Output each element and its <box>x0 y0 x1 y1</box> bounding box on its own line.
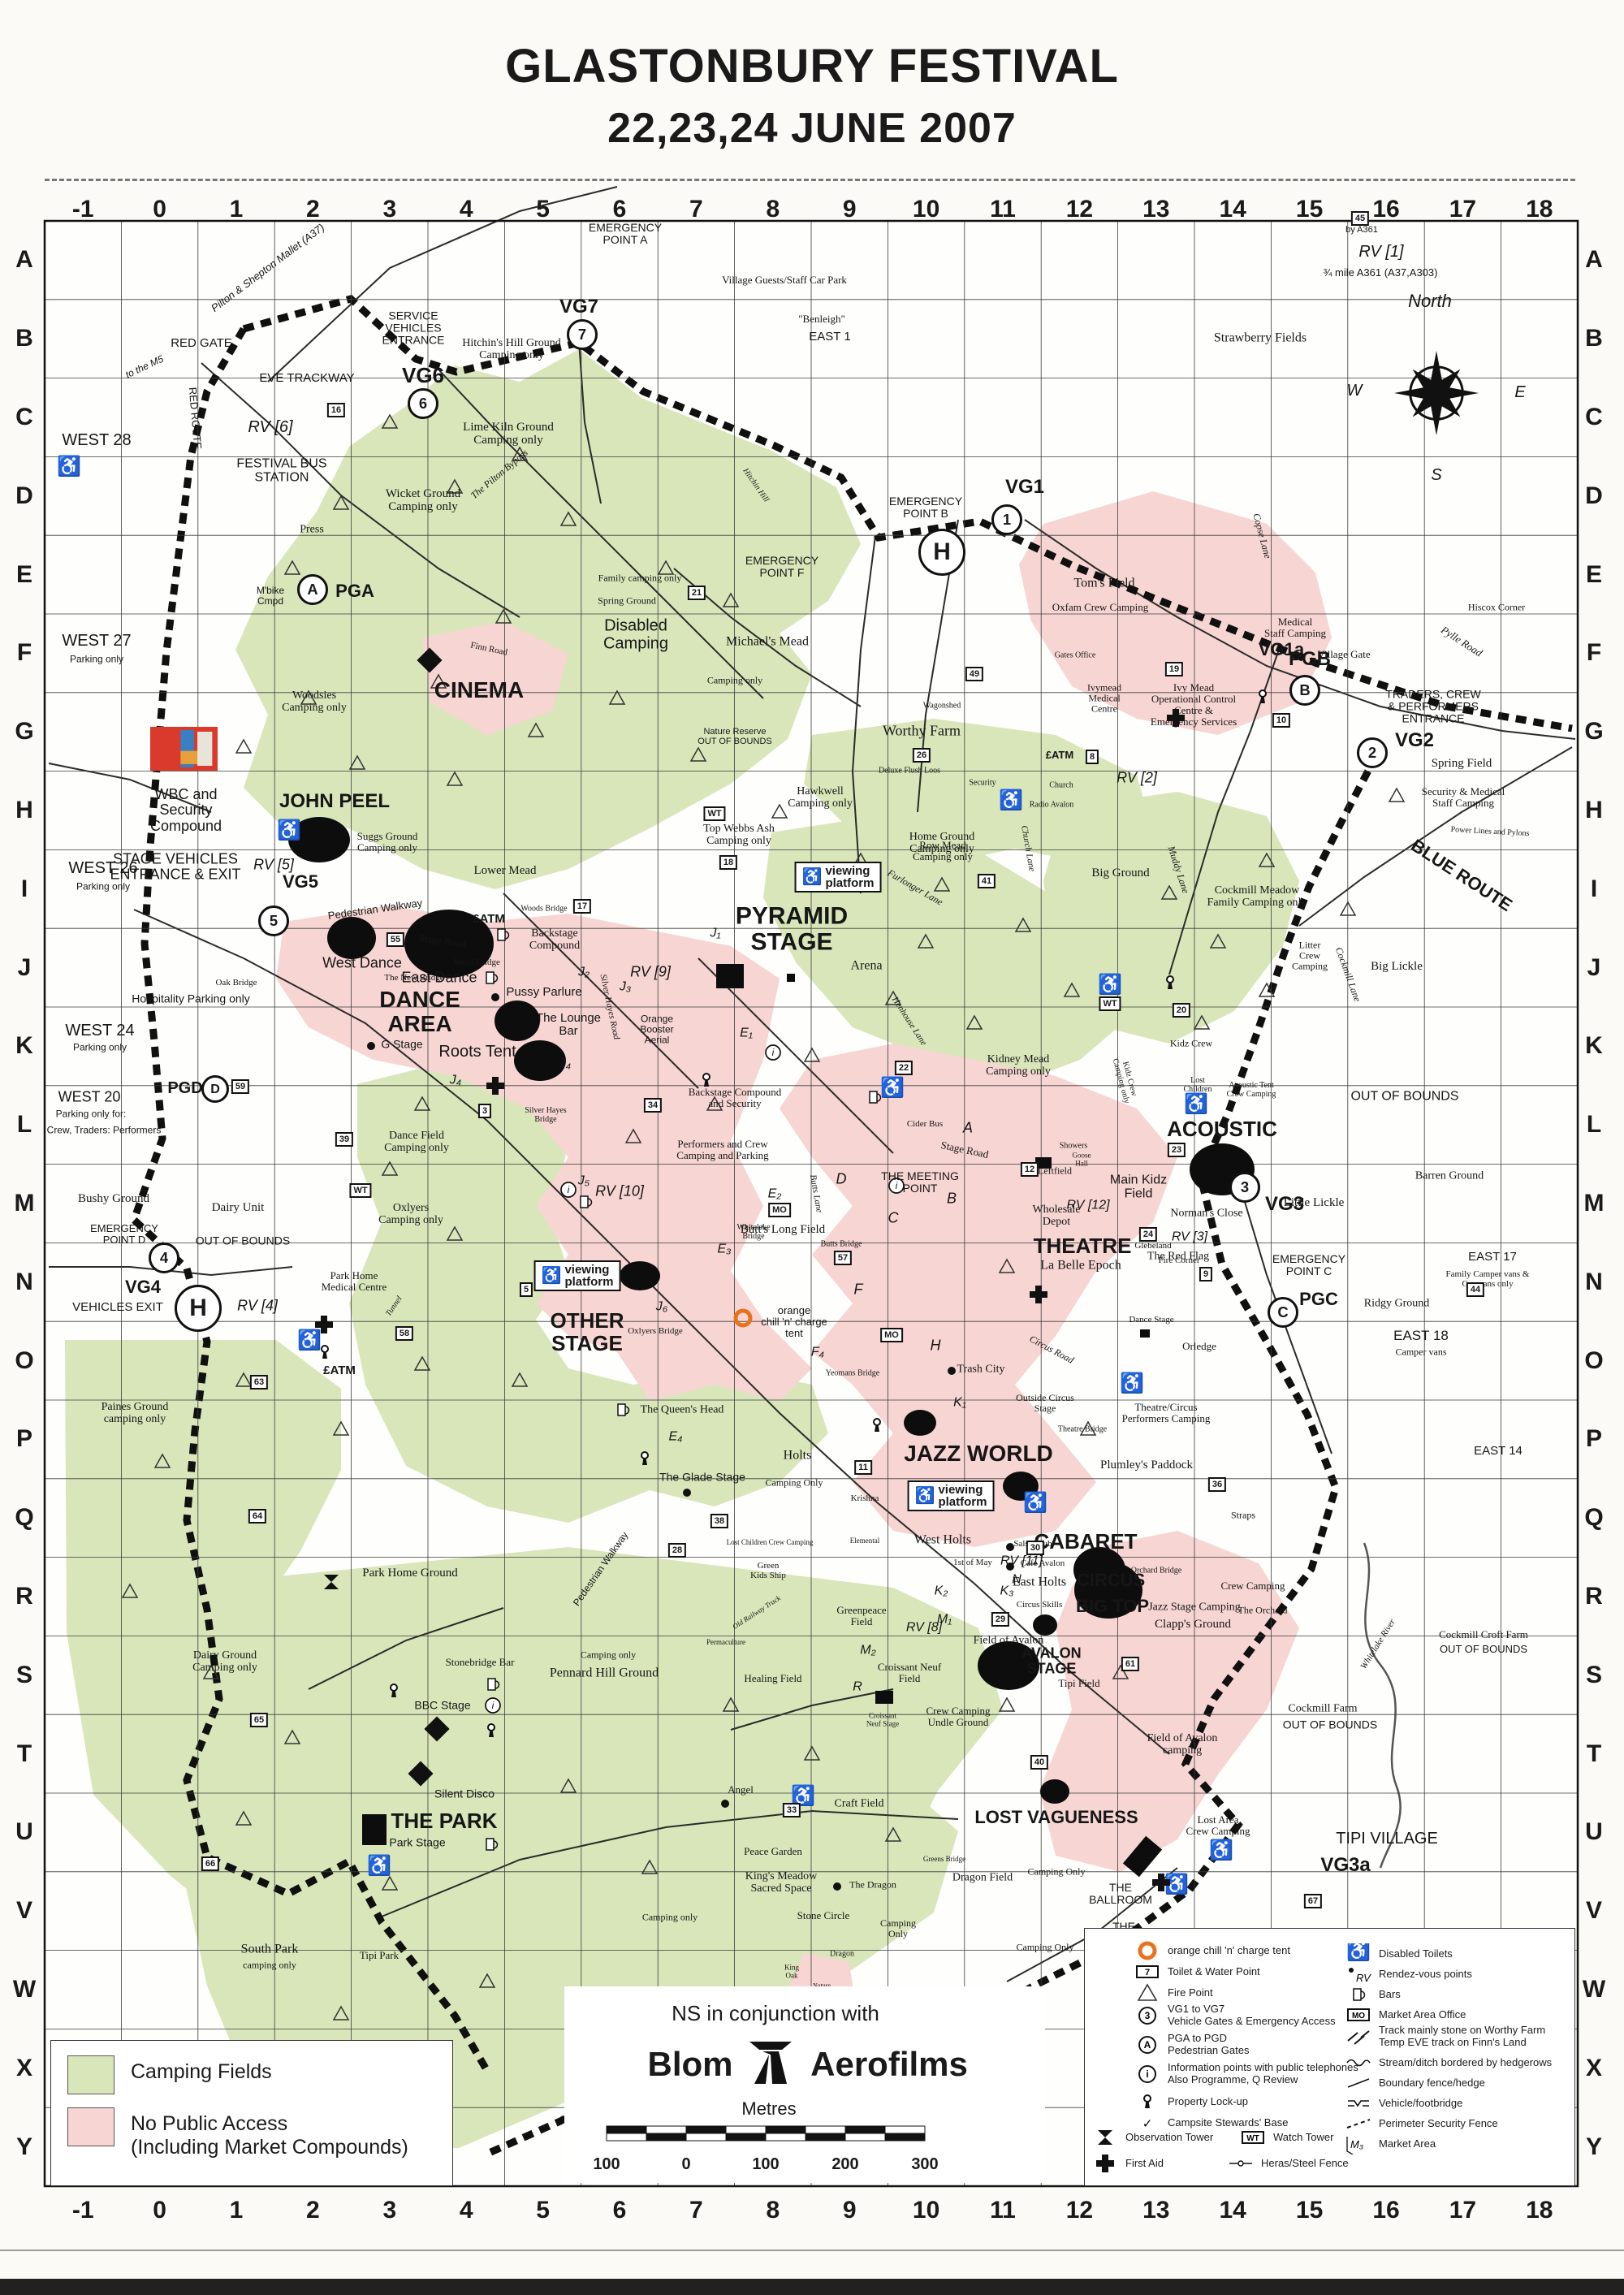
map-label: West Holts <box>914 1532 971 1546</box>
map-label: Backstage Compound and Security <box>689 1087 781 1109</box>
map-label: Leftfield <box>1038 1166 1072 1177</box>
map-label: RV [8] <box>906 1620 942 1634</box>
col-label-bottom: 16 <box>1372 2197 1399 2224</box>
map-label: PGB <box>1289 649 1331 670</box>
map-label: £ATM <box>1046 750 1073 761</box>
map-label: Village Guests/Staff Car Park <box>722 274 847 286</box>
legend-item: 7Toilet & Water Point <box>1134 1961 1260 1982</box>
map-label: Dance Stage <box>1129 1316 1173 1325</box>
map-label: Tipi Park <box>360 1950 399 1961</box>
row-label-left: B <box>15 325 33 352</box>
map-label: La Belle Epoch <box>1040 1258 1121 1272</box>
market-area-office: MO <box>768 1203 791 1217</box>
col-label-top: 9 <box>843 196 857 223</box>
cross-icon <box>1091 2153 1119 2174</box>
map-label: East Dance <box>401 970 477 985</box>
row-label-left: L <box>17 1111 32 1139</box>
col-label-top: 13 <box>1142 196 1169 223</box>
boxWT-icon: WT <box>1239 2127 1267 2148</box>
map-label: Tipi Field <box>1058 1678 1099 1689</box>
gate-badge: H <box>918 529 965 576</box>
map-label: D <box>836 1171 847 1186</box>
wheelchair-icon: ♿ <box>542 1268 562 1284</box>
toilet-water-point: 49 <box>965 667 983 681</box>
map-label: Whitelake Bridge <box>736 1224 770 1242</box>
svg-text:RV: RV <box>1356 1972 1371 1984</box>
col-label-bottom: 14 <box>1220 2197 1246 2224</box>
map-label: Cider Bus <box>907 1120 943 1130</box>
col-label-bottom: 7 <box>689 2197 703 2224</box>
legend-item: M₃Market Area <box>1345 2133 1436 2155</box>
map-label: Orange Booster Aerial <box>640 1014 673 1046</box>
toilet-water-point: 3 <box>478 1104 491 1118</box>
map-label: F <box>854 1281 863 1297</box>
row-label-left: D <box>15 482 33 510</box>
svg-text:MO: MO <box>1352 2012 1365 2021</box>
map-label: Gates Office <box>1055 652 1096 661</box>
legend-item-label: Information points with public telephone… <box>1168 2062 1358 2086</box>
viewing-platform: ♿viewing platform <box>908 1480 995 1511</box>
col-label-top: 10 <box>913 196 939 223</box>
toilet-water-point: 59 <box>231 1079 249 1094</box>
map-label: RV [6] <box>248 419 292 437</box>
map-label: "Benleigh" <box>798 313 845 325</box>
legend-item: MOMarket Area Office <box>1345 2004 1466 2025</box>
map-label: Dragon <box>830 1951 854 1960</box>
tent-icon <box>1134 1940 1161 1961</box>
legend-item-label: First Aid <box>1125 2158 1164 2170</box>
row-label-left: C <box>15 404 33 431</box>
map-label: WEST 24 <box>65 1022 134 1040</box>
map-label: Medical Staff Camping <box>1264 616 1326 639</box>
toilet-water-point: 30 <box>1026 1541 1044 1555</box>
scale-tick: 300 <box>911 2155 938 2174</box>
toilet-water-point: 41 <box>978 874 996 888</box>
map-label: Norman's Close <box>1170 1207 1242 1219</box>
toilet-water-point: 61 <box>1121 1657 1139 1671</box>
col-label-bottom: 5 <box>536 2197 550 2224</box>
col-label-bottom: 11 <box>990 2197 1016 2224</box>
map-label: OUT OF BOUNDS <box>1350 1089 1458 1103</box>
map-label: E <box>1514 384 1525 402</box>
col-label-top: 16 <box>1372 196 1399 223</box>
row-label-right: F <box>1587 639 1601 667</box>
map-label: WEST 20 <box>58 1089 121 1104</box>
map-label: Croissant Neuf Field <box>878 1662 941 1684</box>
svg-text:M₃: M₃ <box>1350 2138 1363 2150</box>
map-label: Theatre/Circus Performers Camping <box>1122 1402 1211 1424</box>
map-label: Greenpeace Field <box>836 1605 886 1627</box>
map-label: Cockmill Meadow Family Camping only <box>1207 884 1307 909</box>
toilet-water-point: 65 <box>250 1713 268 1727</box>
map-label: Ivymead Medical Centre <box>1087 683 1121 715</box>
map-label: THE BALLROOM <box>1089 1882 1152 1906</box>
map-label: PGA <box>335 581 374 601</box>
map-label: VG7 <box>559 296 598 318</box>
map-label: Permaculture <box>706 1639 745 1647</box>
footer-strip <box>0 2279 1624 2295</box>
map-label: Oxfam Crew Camping <box>1052 602 1148 613</box>
map-label: THE MEETING POINT <box>881 1170 959 1195</box>
map-label: ACOUSTIC <box>1167 1117 1277 1140</box>
map-label: Greens Bridge <box>923 1856 965 1864</box>
map-label: J₅ <box>578 1173 590 1187</box>
row-label-right: E <box>1586 561 1602 589</box>
row-label-right: K <box>1585 1032 1603 1060</box>
map-label: VG3a <box>1320 1855 1370 1876</box>
col-label-bottom: 4 <box>460 2197 473 2224</box>
map-label: Litter Crew Camping <box>1292 940 1328 972</box>
map-label: JOHN PEEL <box>279 791 390 812</box>
map-label: EAST 17 <box>1468 1251 1517 1264</box>
map-label: Church <box>1049 782 1073 791</box>
toilet-water-point: 38 <box>710 1514 728 1528</box>
wheelchair-icon: ♿ <box>802 869 823 885</box>
map-label: Park Stage <box>389 1836 445 1848</box>
map-label: RV [10] <box>595 1183 644 1199</box>
col-label-bottom: 17 <box>1449 2197 1476 2224</box>
map-label: Holts <box>784 1448 812 1462</box>
gate-badge: C <box>1268 1297 1298 1328</box>
svg-text:WT: WT <box>1246 2134 1259 2143</box>
toilet-water-point: 58 <box>395 1326 413 1341</box>
beer-icon <box>1345 1984 1372 2005</box>
map-label: C <box>888 1210 899 1225</box>
legend-item: ♿Disabled Toilets <box>1345 1943 1453 1964</box>
watch-tower: WT <box>349 1183 371 1198</box>
row-label-right: W <box>1583 1976 1605 2003</box>
col-label-bottom: 12 <box>1066 2197 1093 2224</box>
toilet-water-point: 57 <box>834 1251 852 1265</box>
map-label: J₆ <box>656 1299 667 1313</box>
legend-item-label: orange chill 'n' charge tent <box>1168 1945 1290 1957</box>
toilet-water-point: 44 <box>1466 1282 1484 1297</box>
col-label-top: 18 <box>1526 196 1553 223</box>
watch-tower: WT <box>703 806 725 821</box>
map-label: camping only <box>243 1960 296 1971</box>
map-label: EMERGENCY POINT A <box>589 222 662 246</box>
row-label-right: Q <box>1584 1504 1603 1532</box>
col-label-top: 3 <box>382 196 396 223</box>
col-label-top: 5 <box>536 196 550 223</box>
map-label: Michael's Mead <box>726 634 809 648</box>
map-label: E₁ <box>740 1026 753 1039</box>
map-label: Lost Children <box>1184 1077 1212 1095</box>
toilet-water-point: 29 <box>991 1612 1009 1627</box>
map-label: E₄ <box>668 1429 682 1443</box>
row-label-right: J <box>1587 954 1601 982</box>
map-label: Performers and Crew Camping and Parking <box>676 1139 768 1161</box>
legend-item: Heras/Steel Fence <box>1227 2153 1349 2174</box>
legend-item: Fire Point <box>1134 1982 1213 2003</box>
map-label: Circus Skills <box>1017 1601 1063 1610</box>
viewing-platform: ♿viewing platform <box>534 1260 621 1291</box>
scale-bar <box>598 2121 939 2154</box>
map-label: J₁ <box>710 926 720 940</box>
col-label-bottom: 6 <box>613 2197 627 2224</box>
col-label-bottom: 1 <box>230 2197 244 2224</box>
legend-item-label: Heras/Steel Fence <box>1261 2158 1349 2170</box>
map-label: VG4 <box>125 1277 161 1297</box>
toilet-water-point: 21 <box>688 586 706 600</box>
map-label: K₂ <box>935 1584 948 1597</box>
legend-item: iInformation points with public telephon… <box>1134 2062 1358 2086</box>
svg-text:7: 7 <box>1145 1968 1150 1977</box>
toilet-water-point: 33 <box>783 1803 801 1817</box>
legend-item: Stream/ditch bordered by hedgerows <box>1345 2052 1552 2073</box>
circlei-icon: i <box>1134 2064 1161 2085</box>
col-label-top: 6 <box>613 196 627 223</box>
map-label: J₃ <box>620 979 631 993</box>
map-label: £ATM <box>473 913 505 926</box>
brand-blom: Blom <box>648 2045 733 2084</box>
map-label: CINEMA <box>434 678 524 702</box>
map-label: SERVICE VEHICLES ENTRANCE <box>382 309 444 346</box>
legend-item: orange chill 'n' charge tent <box>1134 1940 1290 1961</box>
map-label: Parking only <box>73 1043 127 1053</box>
row-label-right: P <box>1586 1425 1602 1453</box>
map-label: VG6 <box>402 364 444 387</box>
svg-text:i: i <box>1146 2068 1148 2080</box>
svg-text:3: 3 <box>1145 2010 1151 2021</box>
row-label-left: J <box>18 954 32 982</box>
map-label: Press <box>300 523 324 535</box>
col-label-bottom: 10 <box>913 2197 939 2224</box>
heras-icon <box>1227 2153 1255 2174</box>
legend-label: No Public Access (Including Market Compo… <box>131 2112 408 2159</box>
toilet-water-point: 22 <box>895 1061 913 1075</box>
map-label: Wagonshed <box>923 702 961 711</box>
map-label: Silver Hayes Bridge <box>525 1107 566 1125</box>
svg-text:A: A <box>1144 2039 1151 2051</box>
map-label: Cafe Avalon <box>1021 1559 1065 1569</box>
col-label-top: 14 <box>1220 196 1246 223</box>
map-label: King's Meadow Sacred Space <box>745 1870 817 1895</box>
svg-text:i: i <box>492 1700 495 1711</box>
col-label-top: -1 <box>72 196 94 223</box>
map-label: Strawberry Fields <box>1214 331 1307 344</box>
col-label-bottom: -1 <box>72 2197 94 2224</box>
footer-rule <box>0 2250 1624 2251</box>
row-label-right: X <box>1586 2055 1602 2082</box>
map-label: RV [4] <box>237 1298 278 1313</box>
map-label: Field of Avalon camping <box>1147 1732 1218 1757</box>
toilet-water-point: 23 <box>1168 1143 1186 1157</box>
legend-item-label: Toilet & Water Point <box>1168 1966 1260 1978</box>
svg-text:♿: ♿ <box>999 789 1023 811</box>
row-label-left: A <box>15 246 33 274</box>
svg-text:♿: ♿ <box>277 819 301 841</box>
map-label: Woods Bridge <box>520 905 567 914</box>
row-label-right: A <box>1585 246 1603 274</box>
map-label: WEST 26 <box>68 860 137 878</box>
market-area-office: MO <box>880 1328 903 1342</box>
svg-text:♿: ♿ <box>367 1854 391 1877</box>
legend-item-label: Stream/ditch bordered by hedgerows <box>1379 2057 1552 2069</box>
row-label-right: C <box>1585 404 1603 431</box>
map-label: W <box>1347 382 1363 400</box>
row-label-left: W <box>13 1976 36 2003</box>
toilet-water-point: 10 <box>1272 713 1290 728</box>
gate-badge: B <box>1289 675 1320 706</box>
map-label: Oak Bridge <box>215 979 257 988</box>
map-label: N <box>1012 1572 1021 1586</box>
map-label: Ivy Mead Operational Control Centre & Em… <box>1151 682 1237 728</box>
map-label: Orledge <box>1182 1341 1216 1352</box>
legend-item: APGA to PGD Pedestrian Gates <box>1134 2033 1249 2057</box>
row-label-left: Q <box>15 1504 33 1532</box>
map-label: Paines Ground camping only <box>101 1401 169 1425</box>
brand-aerofilms: Aerofilms <box>810 2045 968 2084</box>
map-label: Nature Reserve OUT OF BOUNDS <box>698 728 771 747</box>
toilet-water-point: 9 <box>1199 1267 1212 1281</box>
map-label: Barren Ground <box>1415 1169 1484 1182</box>
map-label: Kidz Crew <box>1170 1039 1212 1049</box>
col-label-top: 17 <box>1449 196 1476 223</box>
circle3-icon: 3 <box>1134 2005 1161 2026</box>
map-label: Cockmill Farm <box>1288 1702 1357 1714</box>
map-label: LOST VAGUENESS <box>974 1808 1138 1827</box>
scale-tick: 200 <box>831 2155 858 2174</box>
map-label: Glebeland <box>1134 1242 1171 1251</box>
map-label: Camping Only <box>1028 1867 1086 1878</box>
map-label: Woodsies Camping only <box>282 689 347 714</box>
legend-item: Track mainly stone on Worthy Farm Temp E… <box>1345 2025 1545 2049</box>
map-label: DANCE AREA <box>379 988 460 1036</box>
map-label: E₃ <box>717 1242 731 1256</box>
map-label: £ATM <box>323 1364 356 1377</box>
map-label: Big Ground <box>1091 867 1149 880</box>
map-label: JAZZ WORLD <box>904 1441 1053 1466</box>
map-label: Krishna <box>851 1494 879 1504</box>
map-label: CABARET <box>1034 1530 1137 1553</box>
map-label: RV [1] <box>1358 244 1403 261</box>
row-label-right: V <box>1586 1897 1602 1925</box>
map-label: J₂ <box>578 965 590 979</box>
map-label: M₂ <box>860 1643 875 1657</box>
map-label: The Glade Stage <box>659 1471 745 1483</box>
watch-tower: WT <box>1099 996 1121 1011</box>
map-label: Radio Avalon <box>1030 802 1074 810</box>
map-label: G Stage <box>381 1038 422 1050</box>
row-label-left: R <box>15 1583 33 1610</box>
map-label: Stone Circle <box>797 1910 850 1921</box>
map-label: Disabled Camping <box>603 617 668 652</box>
map-label: Spring Field <box>1432 757 1492 770</box>
stream-icon <box>1345 2052 1372 2073</box>
toilet-water-point: 19 <box>1165 662 1183 676</box>
toilet-water-point: 67 <box>1304 1894 1322 1908</box>
svg-text:♿: ♿ <box>880 1076 905 1099</box>
map-label: Pennard Hill Ground <box>550 1666 659 1679</box>
map-label: Butts Bridge <box>821 1241 862 1250</box>
row-label-left: G <box>15 718 33 746</box>
col-label-top: 15 <box>1296 196 1323 223</box>
m3-icon: M₃ <box>1345 2133 1372 2155</box>
col-label-bottom: 3 <box>382 2197 396 2224</box>
map-label: E₂ <box>768 1186 782 1200</box>
col-label-top: 4 <box>460 196 473 223</box>
map-label: Angel <box>728 1784 754 1796</box>
map-label: Wicket Ground Camping only <box>386 487 460 513</box>
credits-panel: NS in conjunction with Blom Aerofilms Me… <box>564 1986 1045 2183</box>
legend-item-label: Perimeter Security Fence <box>1379 2118 1498 2130</box>
row-label-right: N <box>1585 1269 1603 1296</box>
map-label: Fire Corner <box>1158 1256 1199 1266</box>
gate-badge: 7 <box>567 319 598 350</box>
map-label: RV [3] <box>1172 1230 1207 1243</box>
legend-swatch-no-access <box>67 2107 114 2146</box>
map-label: Crew Camping Undle Ground <box>926 1705 990 1728</box>
row-label-right: L <box>1587 1111 1601 1139</box>
map-label: Family Camper vans & Caravans only <box>1446 1270 1530 1290</box>
map-label: WEST 28 <box>62 432 131 450</box>
svg-text:♿: ♿ <box>1120 1372 1144 1394</box>
map-label: Crew Camping <box>1220 1580 1285 1592</box>
map-label: Theatre Bridge <box>1058 1426 1107 1435</box>
map-label: EAST 18 <box>1393 1329 1449 1343</box>
col-label-top: 8 <box>766 196 780 223</box>
map-label: Dance Field Camping only <box>384 1130 449 1154</box>
map-label: Jazz Stage Camping <box>1148 1601 1241 1613</box>
row-label-left: N <box>15 1269 33 1296</box>
toilet-water-point: 40 <box>1030 1755 1048 1770</box>
col-label-bottom: 2 <box>306 2197 320 2224</box>
toilet-water-point: 36 <box>1208 1477 1226 1492</box>
map-label: PGC <box>1299 1290 1338 1309</box>
row-label-left: U <box>15 1818 33 1846</box>
map-label: WBC and Security Compound <box>150 787 222 834</box>
toilet-water-point: 39 <box>335 1132 353 1147</box>
legend-item: RVRendez-vous points <box>1345 1964 1472 1985</box>
map-label: VG2 <box>1395 730 1434 751</box>
map-label: F₄ <box>811 1345 824 1359</box>
map-label: Hospitality Parking only <box>132 992 250 1005</box>
map-label: Bushy Ground <box>78 1192 149 1205</box>
map-label: The Queen's Head <box>641 1403 724 1415</box>
map-label: VG3 <box>1265 1194 1304 1215</box>
row-label-right: M <box>1584 1190 1605 1217</box>
legend-item-label: Property Lock-up <box>1168 2096 1248 2108</box>
gate-badge: 2 <box>1357 737 1388 768</box>
map-label: OUT OF BOUNDS <box>1440 1644 1527 1655</box>
map-label: Green Kids Ship <box>750 1562 786 1581</box>
map-label: Security <box>969 780 996 789</box>
map-label: Lower Mead <box>473 864 536 877</box>
map-label: TRADERS, CREW & PERFORMERS ENTRANCE <box>1385 688 1480 724</box>
legend-item-label: Observation Tower <box>1125 2132 1213 2144</box>
map-label: Roots Tent <box>438 1044 516 1061</box>
map-label: Tom's Field <box>1073 576 1134 590</box>
map-label: Big Lickle <box>1371 960 1423 973</box>
map-label: Clapp's Ground <box>1155 1618 1231 1631</box>
map-label: Hiscox Corner <box>1468 603 1525 613</box>
scale-tick: 100 <box>752 2155 779 2174</box>
col-label-top: 2 <box>306 196 320 223</box>
row-label-left: I <box>21 875 28 903</box>
map-label: FESTIVAL BUS STATION <box>236 457 326 486</box>
map-label: Silent Disco <box>434 1787 495 1800</box>
legend-swatch-camping <box>67 2055 114 2094</box>
map-label: Worthy Farm <box>883 723 961 738</box>
map-label: Croissant Neuf Stage <box>866 1712 899 1727</box>
map-label: Dragon Field <box>952 1871 1013 1883</box>
boundary-icon <box>1345 2072 1372 2094</box>
map-label: Plumley's Paddock <box>1100 1459 1193 1472</box>
svg-text:♿: ♿ <box>1346 1943 1371 1962</box>
triangle-icon <box>1134 1982 1161 2003</box>
map-label: OUT OF BOUNDS <box>196 1234 290 1247</box>
